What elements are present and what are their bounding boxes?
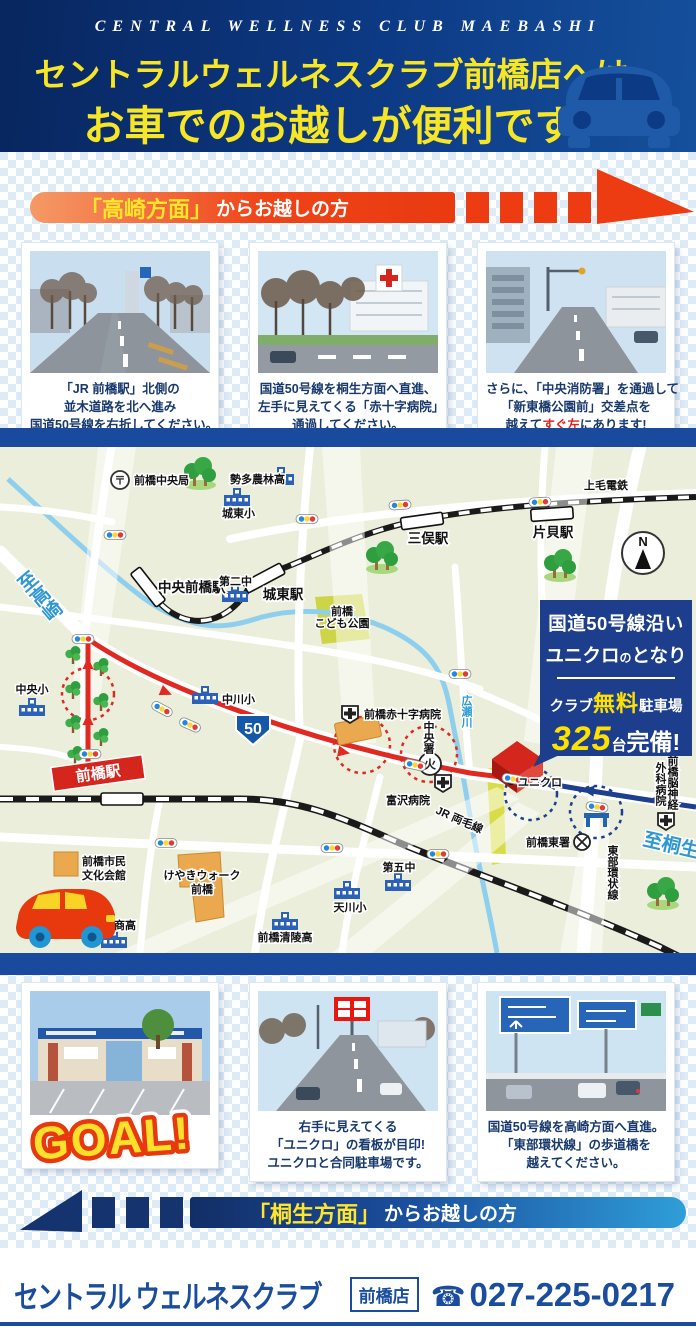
banner-takasaki-rest: からお越しの方 xyxy=(216,194,349,221)
svg-text:N: N xyxy=(638,534,647,549)
banner-kiryu-kicker: 「桐生方面」 xyxy=(248,1197,380,1229)
map-top-band xyxy=(0,428,696,447)
label-tomizawa-hospital: 富沢病院 xyxy=(386,793,430,807)
car-icon xyxy=(544,50,694,152)
banner-takasaki-kicker: 「高崎方面」 xyxy=(80,192,212,224)
photo-blue-road-signs xyxy=(486,991,666,1111)
label-joto-sta: 城東駅 xyxy=(263,586,304,602)
label-daigo-jhs: 第五中 xyxy=(383,860,416,874)
banner-dash xyxy=(568,192,591,223)
label-redcross-hospital: 前橋赤十字病院 xyxy=(364,707,441,721)
label-joto-elem: 城東小 xyxy=(222,506,255,520)
parking-info-box: 国道50号線沿い ユニクロのとなり クラブ無料駐車場 325台完備! xyxy=(540,600,692,756)
info-parking-count: 325台完備! xyxy=(540,720,692,759)
banner-dash xyxy=(160,1197,183,1228)
label-katakai-sta: 片貝駅 xyxy=(533,524,574,540)
map-bottom-band xyxy=(0,953,696,975)
label-bunka-kaikan-1: 前橋市民 xyxy=(82,854,126,868)
info-parking: クラブ無料駐車場 xyxy=(540,686,692,718)
banner-arrow-right-icon xyxy=(597,169,694,224)
svg-text:GOAL!: GOAL! xyxy=(31,1107,192,1170)
label-maebashi-higashi-police: 前橋東署 xyxy=(526,835,570,849)
banner-dash xyxy=(466,192,489,223)
label-keyaki-walk-2: 前橋 xyxy=(191,882,214,896)
footer-logo: セントラル ウェルネスクラブ xyxy=(14,1272,321,1317)
banner-kiryu-rest: からお越しの方 xyxy=(384,1199,517,1226)
label-neuro-hospital-2: 外科病院 xyxy=(654,761,668,807)
label-post-office: 前橋中央局 xyxy=(134,473,189,487)
label-neuro-hospital-1: 前橋脳神経 xyxy=(666,754,679,811)
label-keyaki-walk-1: けやきウォーク xyxy=(164,869,241,882)
svg-text:50: 50 xyxy=(244,721,262,738)
phone-icon: ☎ xyxy=(431,1281,466,1312)
station-marker xyxy=(101,793,143,805)
photo-namiki-street xyxy=(30,251,210,373)
access-map-flyer: CENTRAL WELLNESS CLUB MAEBASHI セントラルウェルネ… xyxy=(0,0,696,1338)
svg-text:GOAL!: GOAL! xyxy=(31,1107,192,1170)
label-jomo-rail: 上毛電鉄 xyxy=(584,478,629,492)
goal-label: GOAL! GOAL! xyxy=(22,1106,218,1172)
label-chuo-fire-station: 中央署 xyxy=(422,720,436,755)
step-card-takasaki-2: 国道50号線を桐生方面へ直進、 左手に見えてくる「赤十字病院」 通過してください… xyxy=(250,243,446,443)
hospital-icon xyxy=(658,813,674,830)
label-tobu-ring-road: 東部環状線 xyxy=(606,844,619,901)
banner-dash xyxy=(126,1197,149,1228)
banner-from-kiryu: 「桐生方面」 からお越しの方 xyxy=(190,1197,686,1228)
label-daini-jhs: 第二中 xyxy=(219,574,252,588)
photo-redcross-hospital xyxy=(258,251,438,373)
hospital-icon xyxy=(342,706,358,723)
step-card-takasaki-1: 「JR 前橋駅」北側の 並木道路を北へ進み 国道50号線を右折してください。 xyxy=(22,243,218,443)
footer-branch-badge: 前橋店 xyxy=(350,1277,419,1312)
label-bunka-kaikan-2: 文化会館 xyxy=(82,868,126,882)
police-station-icon xyxy=(574,834,590,850)
step-caption: 国道50号線を桐生方面へ直進、 左手に見えてくる「赤十字病院」 通過してください… xyxy=(258,380,438,434)
footer-rule xyxy=(0,1322,696,1326)
goal-card: GOAL! GOAL! xyxy=(22,983,218,1168)
post-office-icon: 〒 xyxy=(111,471,129,489)
label-uniqlo: ユニクロ xyxy=(518,776,562,789)
label-chuo-elem: 中央小 xyxy=(16,682,49,696)
banner-from-takasaki: 「高崎方面」 からお越しの方 xyxy=(30,192,455,223)
photo-fire-station-street xyxy=(486,251,666,373)
label-amagawa-elem: 天川小 xyxy=(334,900,367,914)
banner-dash xyxy=(92,1197,115,1228)
step-card-kiryu-2: 国道50号線を高崎方面へ直進。 「東部環状線」の歩道橋を 越えてください。 xyxy=(478,983,674,1181)
banner-dash xyxy=(500,192,523,223)
step-card-kiryu-1: 右手に見えてくる 「ユニクロ」の看板が目印! ユニクロと合同駐車場です。 xyxy=(250,983,446,1181)
svg-text:火: 火 xyxy=(424,758,437,772)
label-hirose-river: 広瀬川 xyxy=(460,694,474,728)
station-marker xyxy=(531,507,574,522)
label-kodomo-park-2: こども公園 xyxy=(315,617,370,630)
label-kodomo-park-1: 前橋 xyxy=(331,604,354,618)
step-caption: 「JR 前橋駅」北側の 並木道路を北へ進み 国道50号線を右折してください。 xyxy=(30,380,210,434)
label-seta-norin: 勢多農林高 xyxy=(230,472,285,486)
step-caption: さらに、「中央消防署」を通過して 「新東橋公園前」交差点を 越えてすぐ左にありま… xyxy=(486,380,666,434)
banner-arrow-left-icon xyxy=(20,1190,82,1232)
info-line2: ユニクロのとなり xyxy=(540,642,692,668)
label-seiryo-high: 前橋清陵高 xyxy=(258,930,313,944)
compass: N xyxy=(622,532,664,574)
hospital-icon xyxy=(435,775,451,792)
header: CENTRAL WELLNESS CLUB MAEBASHI セントラルウェルネ… xyxy=(0,0,696,152)
label-mitsumata-sta: 三俣駅 xyxy=(408,530,449,546)
step-caption: 国道50号線を高崎方面へ直進。 「東部環状線」の歩道橋を 越えてください。 xyxy=(486,1118,666,1172)
header-english-title: CENTRAL WELLNESS CLUB MAEBASHI xyxy=(0,18,696,36)
banner-dash xyxy=(534,192,557,223)
label-nakagawa-elem: 中川小 xyxy=(222,692,255,706)
label-chuo-maebashi-sta: 中央前橋駅 xyxy=(158,579,226,595)
info-line1: 国道50号線沿い xyxy=(540,610,692,636)
footer-phone: ☎027-225-0217 xyxy=(431,1276,675,1314)
svg-text:〒: 〒 xyxy=(115,474,126,487)
step-card-takasaki-3: さらに、「中央消防署」を通過して 「新東橋公園前」交差点を 越えてすぐ左にありま… xyxy=(478,243,674,443)
step-caption: 右手に見えてくる 「ユニクロ」の看板が目印! ユニクロと合同駐車場です。 xyxy=(258,1118,438,1172)
photo-uniqlo-sign-road xyxy=(258,991,438,1111)
photo-club-building xyxy=(30,991,210,1115)
